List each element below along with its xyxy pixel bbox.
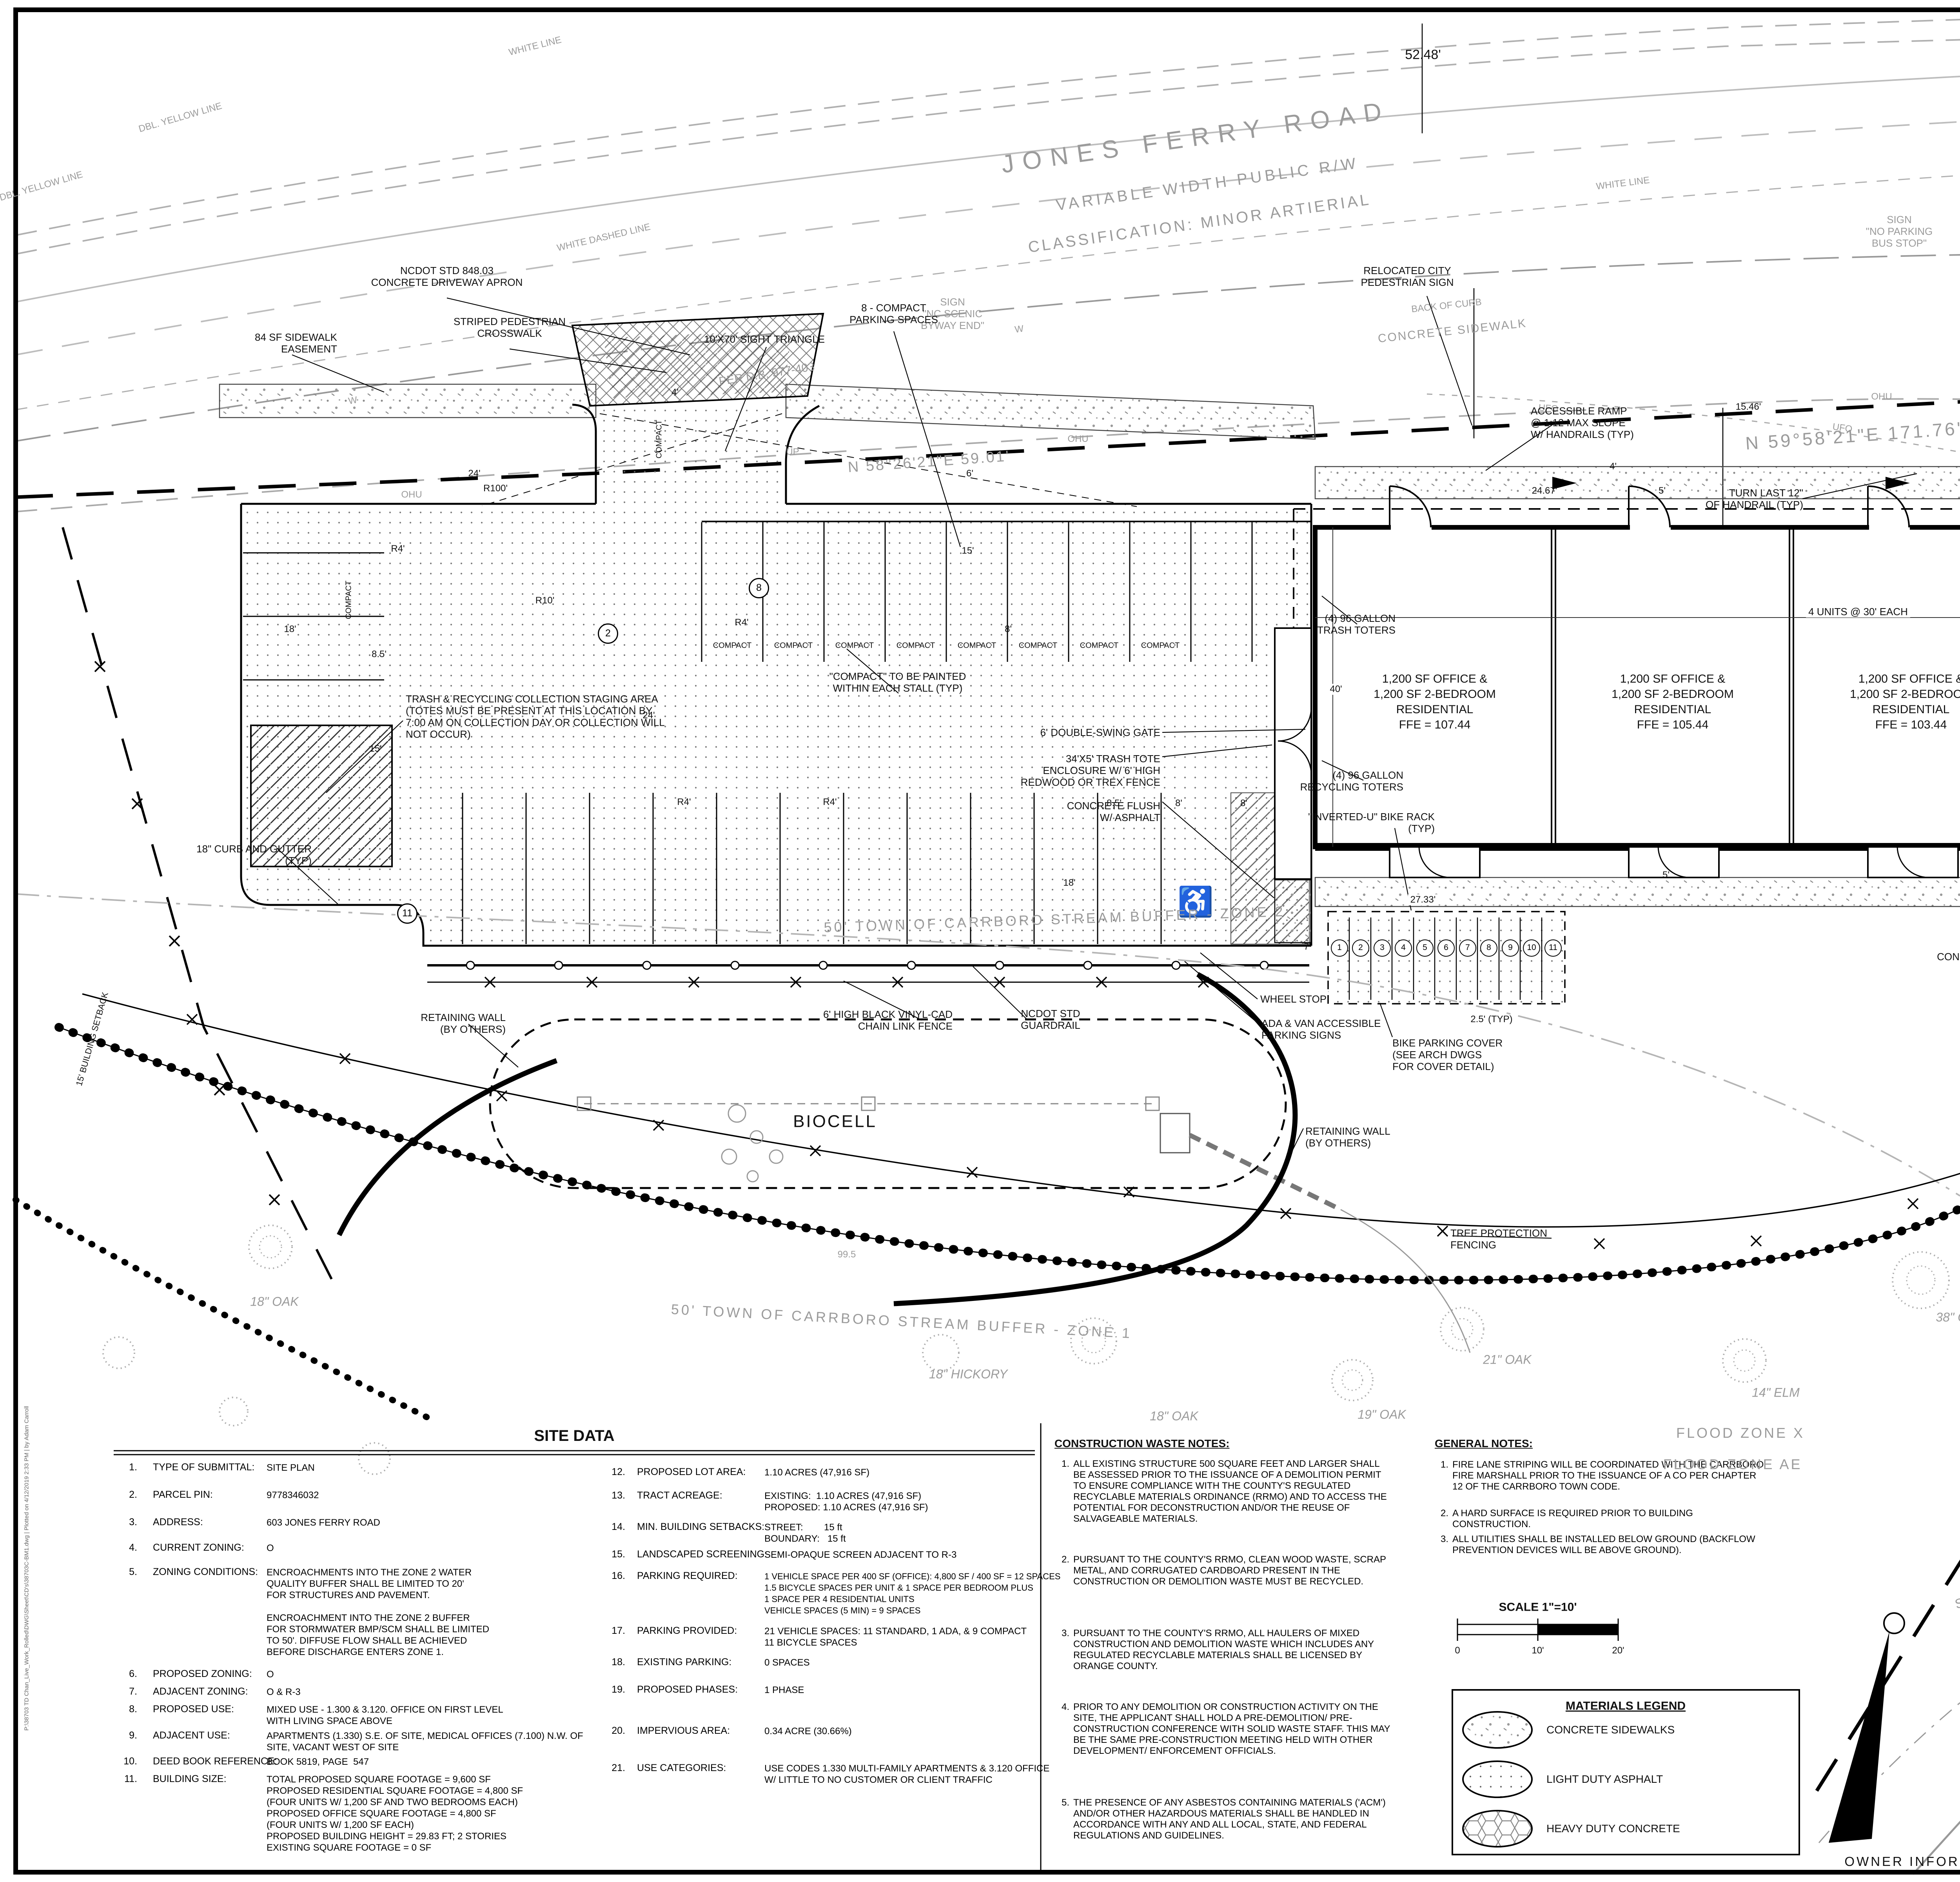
site-data-num: 18. bbox=[612, 1657, 625, 1668]
ada-signs-callout: ADA & VAN ACCESSIBLE PARKING SIGNS bbox=[1261, 1017, 1381, 1041]
construction-note: THE PRESENCE OF ANY ASBESTOS CONTAINING … bbox=[1073, 1797, 1391, 1841]
compact-stall-label: COMPACT bbox=[1019, 641, 1058, 650]
site-data-num: 15. bbox=[612, 1549, 625, 1560]
general-notes-title: GENERAL NOTES: bbox=[1435, 1437, 1533, 1450]
unit-3-label: 1,200 SF OFFICE & 1,200 SF 2-BEDROOM RES… bbox=[1850, 671, 1960, 732]
concrete-flush-callout: CONCRETE FLUSH W/ ASPHALT bbox=[1067, 800, 1160, 823]
site-data-label: ZONING CONDITIONS: bbox=[153, 1566, 258, 1578]
dim-r4: R4' bbox=[735, 617, 748, 628]
flood-zone-x-label: FLOOD ZONE X bbox=[1676, 1425, 1805, 1441]
site-data-num: 1. bbox=[129, 1462, 137, 1473]
space-count-2: 2 bbox=[598, 623, 618, 644]
ncdot-apron-callout: NCDOT STD 848.03 CONCRETE DRIVEWAY APRON bbox=[371, 265, 523, 288]
site-data-num: 2. bbox=[129, 1489, 137, 1501]
legend-item-heavy-duty-concrete: HEAVY DUTY CONCRETE bbox=[1546, 1822, 1680, 1835]
site-data-value: MIXED USE - 1.300 & 3.120. OFFICE ON FIR… bbox=[267, 1704, 503, 1727]
guardrail-callout: NCDOT STD GUARDRAIL bbox=[1021, 1008, 1080, 1031]
dim-1546: 15.46' bbox=[1736, 401, 1761, 412]
site-data-num: 14. bbox=[612, 1521, 625, 1533]
site-data-label: DEED BOOK REFERENCE: bbox=[153, 1756, 277, 1767]
gate-callout: 6' DOUBLE-SWING GATE bbox=[1040, 727, 1160, 738]
compact-stall-label: COMPACT bbox=[774, 641, 813, 650]
note-num: 1. bbox=[1062, 1459, 1069, 1470]
site-data-value: 0 SPACES bbox=[764, 1657, 810, 1668]
site-data-label: PARCEL PIN: bbox=[153, 1489, 213, 1501]
accessible-ramp-callout: ACCESSIBLE RAMP @ 1:12 MAX SLOPE W/ HAND… bbox=[1531, 405, 1634, 440]
dim-6: 6' bbox=[966, 468, 973, 479]
site-data-value: SITE PLAN bbox=[267, 1462, 315, 1473]
site-data-title: SITE DATA bbox=[534, 1427, 614, 1445]
compact-spaces-callout: 8 - COMPACT PARKING SPACES bbox=[849, 302, 938, 325]
bike-space-number: 5 bbox=[1416, 939, 1434, 957]
compact-paint-note: "COMPACT" TO BE PAINTED WITHIN EACH STAL… bbox=[829, 670, 966, 694]
site-data-num: 20. bbox=[612, 1725, 625, 1737]
note-num: 5. bbox=[1062, 1797, 1069, 1808]
site-data-label: TYPE OF SUBMITTAL: bbox=[153, 1462, 254, 1473]
dim-8: 8' bbox=[1240, 798, 1247, 809]
compact-stall-label: COMPACT bbox=[835, 641, 874, 650]
contour-label: 99.5 bbox=[838, 1249, 856, 1260]
dim-2733: 27.33' bbox=[1408, 894, 1438, 905]
tree-label: 14" ELM bbox=[1752, 1385, 1800, 1400]
site-data-label: PROPOSED ZONING: bbox=[153, 1668, 252, 1680]
site-data-num: 19. bbox=[612, 1684, 625, 1695]
turn-handrail-callout: TURN LAST 12" OF HANDRAIL (TYP) bbox=[1706, 487, 1803, 510]
retaining-wall-callout: RETAINING WALL (BY OTHERS) bbox=[421, 1012, 506, 1035]
general-note: A HARD SURFACE IS REQUIRED PRIOR TO BUIL… bbox=[1452, 1508, 1766, 1530]
compact-stall-label: COMPACT bbox=[1080, 641, 1119, 650]
legend-item-concrete-sidewalks: CONCRETE SIDEWALKS bbox=[1546, 1724, 1675, 1736]
bike-space-number: 10 bbox=[1523, 939, 1540, 957]
dim-r100: R100' bbox=[483, 483, 508, 494]
plan-sheet: JONES FERRY ROAD VARIABLE WIDTH PUBLIC R… bbox=[0, 0, 1960, 1882]
site-data-value: STREET: 15 ft BOUNDARY: 15 ft bbox=[764, 1522, 846, 1544]
site-data-value: 1 PHASE bbox=[764, 1684, 804, 1696]
dim-5: 5' bbox=[1662, 870, 1670, 881]
bike-space-number: 2 bbox=[1352, 939, 1369, 957]
compact-stall-label: COMPACT bbox=[655, 420, 664, 459]
site-data-label: PROPOSED LOT AREA: bbox=[637, 1466, 746, 1478]
watermain-w-label: W bbox=[347, 394, 358, 407]
ohu-label: OHU bbox=[401, 489, 422, 500]
crosswalk-callout: STRIPED PEDESTRIAN CROSSWALK bbox=[454, 316, 566, 339]
site-data-label: MIN. BUILDING SETBACKS: bbox=[637, 1521, 764, 1533]
tote-enclosure-callout: 34'X5' TRASH TOTE ENCLOSURE W/ 6' HIGH R… bbox=[1021, 753, 1160, 788]
dim-40: 40' bbox=[1327, 684, 1344, 695]
dim-5248: 52.48' bbox=[1405, 47, 1441, 62]
construction-note: ALL EXISTING STRUCTURE 500 SQUARE FEET A… bbox=[1073, 1459, 1391, 1524]
compact-stall-label: COMPACT bbox=[1141, 641, 1180, 650]
bike-space-number: 3 bbox=[1374, 939, 1391, 957]
trash-toters-callout: (4) 96 GALLON TRASH TOTERS bbox=[1317, 612, 1396, 636]
note-num: 2. bbox=[1441, 1508, 1448, 1519]
note-num: 1. bbox=[1441, 1459, 1448, 1470]
site-data-value: USE CODES 1.330 MULTI-FAMILY APARTMENTS … bbox=[764, 1763, 1049, 1786]
note-num: 3. bbox=[1062, 1628, 1069, 1639]
tree-label: 38" OAK bbox=[1936, 1310, 1960, 1324]
site-data-num: 3. bbox=[129, 1517, 137, 1528]
site-data-label: LANDSCAPED SCREENING: bbox=[637, 1549, 767, 1560]
scale-title: SCALE 1"=10' bbox=[1499, 1601, 1577, 1615]
sidewalk-easement-callout: 84 SF SIDEWALK EASEMENT bbox=[255, 331, 337, 355]
note-num: 4. bbox=[1062, 1702, 1069, 1713]
site-data-num: 12. bbox=[612, 1466, 625, 1478]
sight-triangle-callout: 10'X70' SIGHT TRIANGLE bbox=[704, 333, 825, 345]
site-data-value: 1.10 ACRES (47,916 SF) bbox=[764, 1467, 869, 1478]
scale-tick-10: 10' bbox=[1532, 1645, 1544, 1656]
tree-label: 19" OAK bbox=[1357, 1407, 1406, 1422]
relocated-pedestrian-sign-label: RELOCATED CITY PEDESTRIAN SIGN bbox=[1361, 265, 1454, 288]
dim-2467: 24.67' bbox=[1532, 485, 1557, 496]
curb-gutter-callout: 18" CURB AND GUTTER (TYP) bbox=[196, 843, 312, 867]
dim-r10: R10' bbox=[535, 595, 555, 606]
compact-stall-label: COMPACT bbox=[344, 581, 353, 619]
site-data-label: PROPOSED PHASES: bbox=[637, 1684, 738, 1695]
ohu-label: OHU bbox=[1871, 391, 1892, 402]
general-note: ALL UTILITIES SHALL BE INSTALLED BELOW G… bbox=[1452, 1534, 1766, 1556]
bike-space-number: 8 bbox=[1480, 939, 1497, 957]
site-data-label: TRACT ACREAGE: bbox=[637, 1490, 722, 1501]
bike-space-number: 6 bbox=[1437, 939, 1455, 957]
dim-15: 15' bbox=[369, 743, 381, 754]
bike-space-number: 9 bbox=[1502, 939, 1519, 957]
site-data-value: 0.34 ACRE (30.66%) bbox=[764, 1726, 852, 1737]
dim-25-typ: 2.5' (TYP) bbox=[1470, 1014, 1512, 1025]
bike-space-number: 4 bbox=[1395, 939, 1412, 957]
dim-15: 15' bbox=[962, 545, 974, 556]
sewer-creek bbox=[1819, 848, 1960, 1874]
dim-7: 7' bbox=[1304, 941, 1311, 952]
site-data-value: O & R-3 bbox=[267, 1686, 301, 1698]
site-data-label: USE CATEGORIES: bbox=[637, 1762, 726, 1774]
ohu-label: OHU bbox=[1067, 434, 1088, 445]
recycling-toters-callout: (4) 96 GALLON RECYCLING TOTERS bbox=[1300, 769, 1403, 793]
site-data-value: TOTAL PROPOSED SQUARE FOOTAGE = 9,600 SF… bbox=[267, 1774, 523, 1853]
site-data-num: 21. bbox=[612, 1762, 625, 1774]
retaining-wall-callout: RETAINING WALL (BY OTHERS) bbox=[1305, 1125, 1390, 1149]
site-data-value: SEMI-OPAQUE SCREEN ADJACENT TO R-3 bbox=[764, 1549, 956, 1560]
compact-stall-label: COMPACT bbox=[713, 641, 752, 650]
tree-label: 21" OAK bbox=[1483, 1352, 1531, 1367]
bike-space-number: 7 bbox=[1459, 939, 1476, 957]
site-data-label: PARKING REQUIRED: bbox=[637, 1570, 738, 1582]
site-data-label: PROPOSED USE: bbox=[153, 1704, 234, 1715]
site-data-num: 6. bbox=[129, 1668, 137, 1680]
site-data-value: 1 VEHICLE SPACE PER 400 SF (OFFICE): 4,8… bbox=[764, 1571, 1060, 1616]
plot-file-info: P:\38703 TD Chan_Live_Work_Rolled\DWG\Sh… bbox=[23, 1406, 30, 1731]
dim-4: 4' bbox=[671, 387, 679, 398]
owner-info: OWNER INFORMATION: FRANCIS CHAN; 101 HAR… bbox=[1844, 1854, 1960, 1869]
construction-note: PURSUANT TO THE COUNTY'S RRMO, CLEAN WOO… bbox=[1073, 1554, 1391, 1587]
legend-swatches bbox=[1463, 1712, 1532, 1847]
space-count-11: 11 bbox=[397, 903, 417, 924]
dim-18: 18' bbox=[284, 624, 296, 635]
site-data-label: CURRENT ZONING: bbox=[153, 1542, 244, 1553]
site-data-num: 16. bbox=[612, 1570, 625, 1582]
site-data-value: O bbox=[267, 1669, 274, 1680]
site-data-value: EXISTING: 1.10 ACRES (47,916 SF) PROPOSE… bbox=[764, 1490, 928, 1513]
site-data-label: ADJACENT ZONING: bbox=[153, 1686, 248, 1697]
dim-8-5: 8.5' bbox=[372, 649, 387, 660]
site-data-num: 9. bbox=[129, 1730, 137, 1741]
site-data-label: EXISTING PARKING: bbox=[637, 1657, 731, 1668]
unit-2-label: 1,200 SF OFFICE & 1,200 SF 2-BEDROOM RES… bbox=[1612, 671, 1734, 732]
dim-r4: R4' bbox=[391, 543, 405, 554]
site-data-value: 603 JONES FERRY ROAD bbox=[267, 1517, 380, 1528]
biocell-label: BIOCELL bbox=[793, 1111, 877, 1131]
site-data-num: 13. bbox=[612, 1490, 625, 1501]
dim-24: 24' bbox=[468, 468, 480, 479]
materials-legend-title: MATERIALS LEGEND bbox=[1566, 1700, 1686, 1713]
site-data-label: IMPERVIOUS AREA: bbox=[637, 1725, 730, 1737]
space-count-8: 8 bbox=[749, 578, 769, 598]
watermain-w-label: W bbox=[1014, 323, 1024, 336]
scale-tick-20: 20' bbox=[1612, 1645, 1624, 1656]
site-data-num: 8. bbox=[129, 1704, 137, 1715]
dim-8: 8' bbox=[1005, 624, 1012, 635]
site-data-value: 9778346032 bbox=[267, 1490, 319, 1501]
dim-r4: R4' bbox=[677, 797, 691, 808]
note-num: 2. bbox=[1062, 1554, 1069, 1565]
site-data-label: BUILDING SIZE: bbox=[153, 1773, 227, 1785]
flood-zone-ae-label: FLOOD ZONE AE bbox=[1663, 1456, 1802, 1473]
site-data-value: ENCROACHMENTS INTO THE ZONE 2 WATER QUAL… bbox=[267, 1567, 489, 1658]
scale-tick-0: 0 bbox=[1455, 1645, 1460, 1656]
chain-fence-callout: 6' HIGH BLACK VINYL-CAD CHAIN LINK FENCE bbox=[823, 1008, 953, 1032]
site-data-num: 17. bbox=[612, 1625, 625, 1637]
units-dim-label: 4 UNITS @ 30' EACH bbox=[1806, 606, 1910, 618]
site-data-num: 7. bbox=[129, 1686, 137, 1697]
dim-8: 8' bbox=[1175, 798, 1182, 809]
tree-protection-callout: TREE PROTECTION FENCING bbox=[1450, 1227, 1547, 1251]
site-data-value: BOOK 5819, PAGE 547 bbox=[267, 1756, 369, 1768]
bike-rack-callout: "INVERTED-U" BIKE RACK (TYP) bbox=[1308, 811, 1435, 834]
tree-label: 18" OAK bbox=[250, 1294, 298, 1309]
bike-space-number: 11 bbox=[1544, 939, 1562, 957]
dim-r4: R4' bbox=[823, 797, 837, 808]
dim-18: 18' bbox=[1063, 877, 1075, 888]
dim-5: 5' bbox=[1659, 485, 1666, 496]
bike-space-number: 1 bbox=[1331, 939, 1348, 957]
up-label: UP bbox=[786, 447, 799, 458]
bike-cover-callout: BIKE PARKING COVER (SEE ARCH DWGS FOR CO… bbox=[1392, 1037, 1503, 1072]
site-data-num: 10. bbox=[123, 1756, 137, 1767]
site-data-num: 5. bbox=[129, 1566, 137, 1578]
site-data-num: 11. bbox=[124, 1773, 137, 1785]
site-data-label: ADJACENT USE: bbox=[153, 1730, 230, 1741]
site-data-value: O bbox=[267, 1542, 274, 1554]
site-data-value: APARTMENTS (1.330) S.E. OF SITE, MEDICAL… bbox=[267, 1730, 583, 1753]
site-data-value: 21 VEHICLE SPACES: 11 STANDARD, 1 ADA, &… bbox=[764, 1626, 1027, 1648]
site-data-num: 4. bbox=[129, 1542, 137, 1553]
sign-no-parking-bus-stop: SIGN "NO PARKING BUS STOP" bbox=[1866, 214, 1933, 249]
site-data-label: PARKING PROVIDED: bbox=[637, 1625, 737, 1637]
construction-note: PRIOR TO ANY DEMOLITION OR CONSTRUCTION … bbox=[1073, 1702, 1391, 1757]
construction-notes-title: CONSTRUCTION WASTE NOTES: bbox=[1054, 1437, 1229, 1450]
legend-item-light-duty-asphalt: LIGHT DUTY ASPHALT bbox=[1546, 1773, 1663, 1786]
tree-label: 18" OAK bbox=[1150, 1409, 1198, 1423]
unit-1-label: 1,200 SF OFFICE & 1,200 SF 2-BEDROOM RES… bbox=[1374, 671, 1496, 732]
compact-stall-label: COMPACT bbox=[897, 641, 935, 650]
construction-note: PURSUANT TO THE COUNTY'S RRMO, ALL HAULE… bbox=[1073, 1628, 1391, 1672]
trash-staging-callout: TRASH & RECYCLING COLLECTION STAGING ARE… bbox=[406, 693, 665, 741]
concrete-stair-callout: CONCRETE STAIR (TYP) bbox=[1937, 951, 1960, 974]
wheel-stop-callout: WHEEL STOP bbox=[1260, 993, 1327, 1005]
site-data-label: ADDRESS: bbox=[153, 1517, 203, 1528]
tree-label: 18" HICKORY bbox=[929, 1367, 1007, 1381]
compact-stall-label: COMPACT bbox=[958, 641, 996, 650]
note-num: 3. bbox=[1441, 1534, 1448, 1545]
dim-4: 4' bbox=[1610, 461, 1617, 472]
